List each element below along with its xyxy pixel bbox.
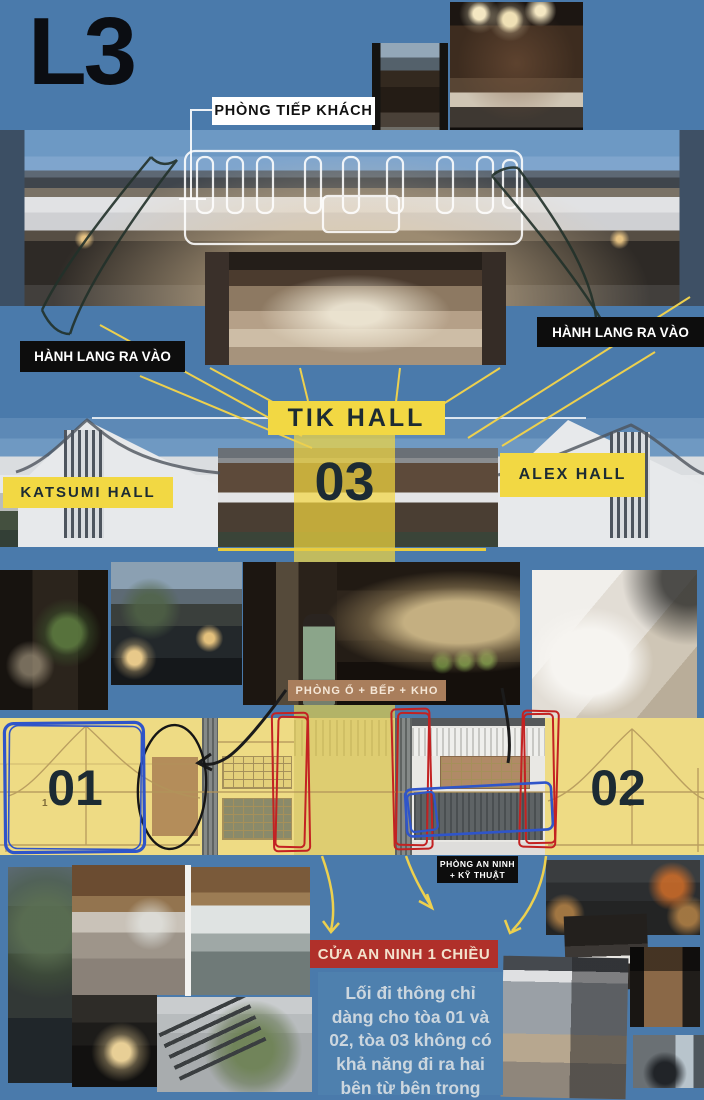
- corridor-label-left: HÀNH LANG RA VÀO: [20, 341, 185, 372]
- photo-wood-ceiling-lounge: [72, 865, 185, 995]
- photo-bedroom-loft: [633, 1035, 704, 1088]
- elevation-dark-panels: [414, 792, 543, 840]
- photo-lobby-interior: [205, 252, 506, 365]
- yellow-underline: [218, 548, 486, 551]
- photo-mirror-hallway: [501, 956, 629, 1100]
- tik-hall-label: TIK HALL: [268, 401, 445, 435]
- katsumi-hall-label: KATSUMI HALL: [3, 477, 173, 508]
- photo-staircase-bonsai: [157, 997, 312, 1092]
- tower-01-number: 01: [40, 760, 110, 816]
- tower-02-number: 02: [582, 760, 654, 816]
- security-tech-label: PHÒNG AN NINH + KỸ THUẬT: [437, 856, 518, 883]
- photo-water-courtyard: [111, 562, 242, 685]
- photo-tree-wall-garden: [8, 867, 77, 1083]
- reception-label: PHÒNG TIẾP KHÁCH: [212, 97, 375, 125]
- design-board: L3 1 1: [0, 0, 704, 1100]
- elevation-brown-zone: [152, 757, 198, 836]
- elevation-base-strip: [412, 842, 545, 855]
- photo-lantern-water-court: [72, 995, 157, 1087]
- elevation-center-mullions: [294, 720, 395, 756]
- note-panel: Lối đi thông chỉ dàng cho tòa 01 và 02, …: [318, 972, 503, 1095]
- elevation-window-grid-b: [222, 798, 292, 840]
- tower-03-number: 03: [294, 452, 395, 512]
- photo-bonsai-dining-room: [0, 570, 108, 710]
- corridor-label-right: HÀNH LANG RA VÀO: [537, 317, 704, 347]
- elevation-brown-band: [440, 756, 530, 789]
- elevation-door-strip-right: [395, 718, 412, 855]
- photo-indoor-pool: [191, 867, 310, 995]
- room-kitchen-storage-label: PHÒNG Ổ + BẾP + KHO: [288, 680, 446, 701]
- elevation-window-grid-a: [222, 756, 292, 789]
- elevation-door-strip-left: [202, 718, 218, 855]
- elevation-roof-bar: [412, 718, 545, 726]
- staircase-steps: [158, 997, 266, 1081]
- level-title: L3: [28, 4, 134, 100]
- one-way-security-door-label: CỬA AN NINH 1 CHIỀU: [310, 940, 498, 968]
- photo-wood-floor-corridor: [630, 947, 700, 1027]
- photo-white-sofa-lounge: [532, 570, 697, 737]
- alex-hall-label: ALEX HALL: [500, 453, 645, 497]
- note-text: Lối đi thông chỉ dàng cho tòa 01 và 02, …: [318, 972, 503, 1100]
- photo-moon-gate-living-room: [450, 2, 583, 148]
- elevation-white-mullions: [412, 728, 545, 756]
